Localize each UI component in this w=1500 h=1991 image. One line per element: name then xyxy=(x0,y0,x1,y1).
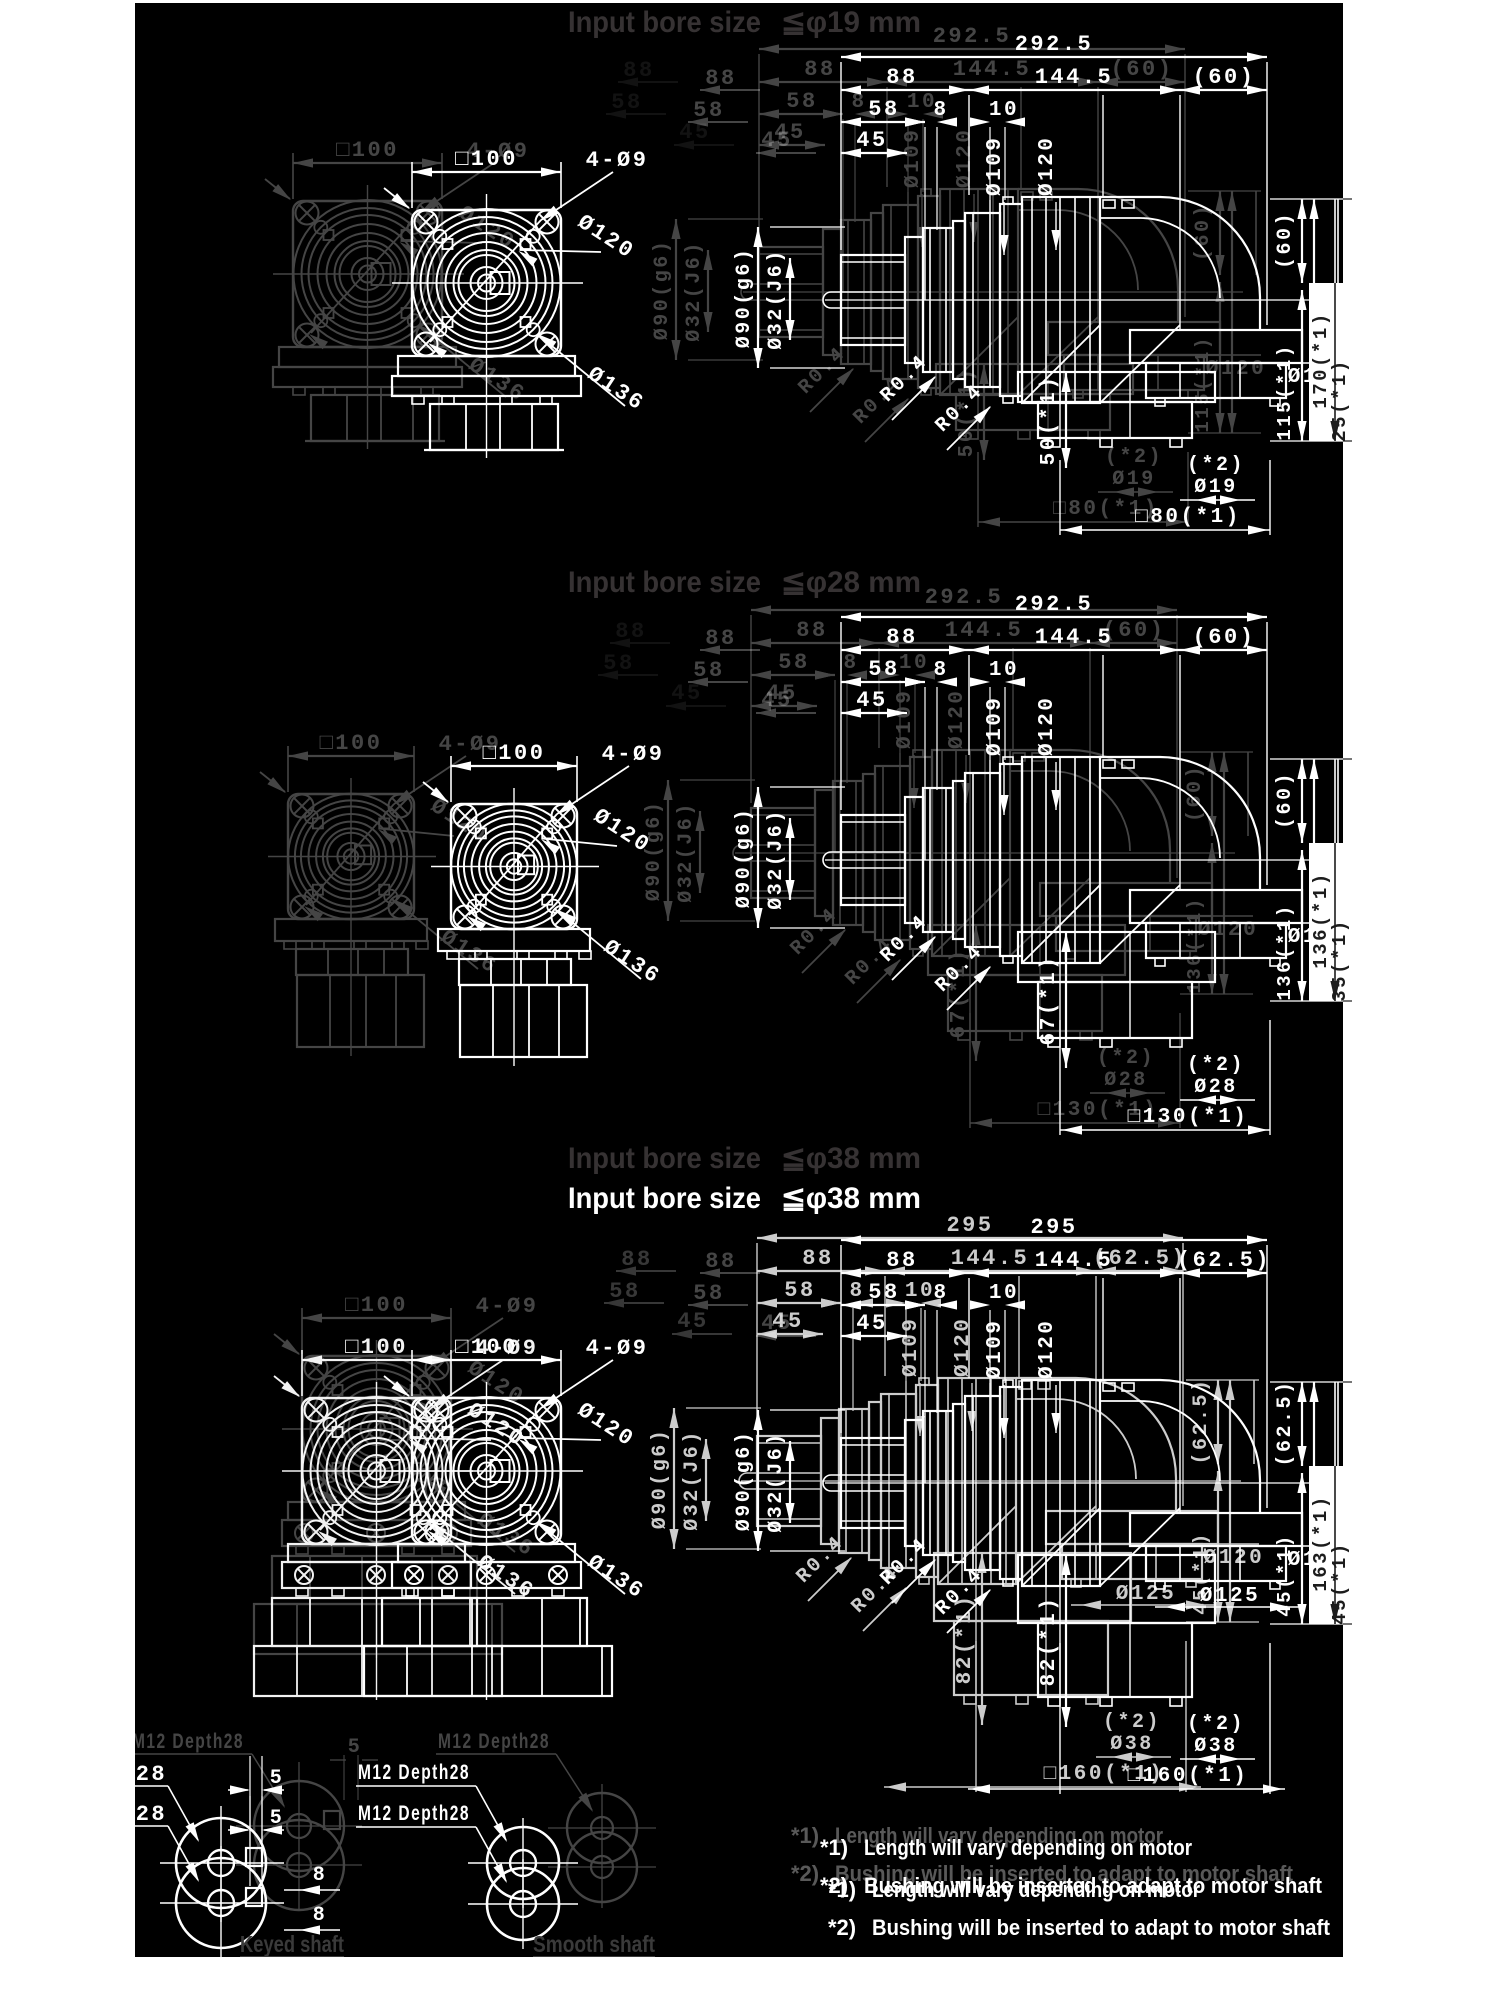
svg-text:88: 88 xyxy=(621,1247,652,1272)
svg-text:88: 88 xyxy=(804,57,835,82)
svg-text:Ø109: Ø109 xyxy=(984,1319,1007,1379)
svg-text:(*2): (*2) xyxy=(1097,1047,1155,1070)
svg-text:295: 295 xyxy=(1030,1215,1077,1240)
svg-text:(*2): (*2) xyxy=(1103,1711,1161,1734)
svg-text:(60): (60) xyxy=(1274,211,1297,269)
svg-text:8: 8 xyxy=(843,652,858,675)
svg-text:88: 88 xyxy=(886,1248,917,1273)
svg-text:≦φ38 mm: ≦φ38 mm xyxy=(781,1182,921,1215)
svg-text:Input bore size: Input bore size xyxy=(568,1142,761,1175)
svg-text:144.5: 144.5 xyxy=(951,1246,1030,1271)
svg-text:88: 88 xyxy=(796,618,827,643)
svg-text:□160(*1): □160(*1) xyxy=(1128,1765,1249,1788)
svg-text:*2): *2) xyxy=(791,1861,819,1886)
svg-text:Keyed shaft: Keyed shaft xyxy=(240,1931,344,1957)
svg-text:Ø120: Ø120 xyxy=(1036,696,1059,756)
svg-text:(62.5): (62.5) xyxy=(1274,1379,1297,1466)
svg-text:Ø120: Ø120 xyxy=(1036,136,1059,196)
svg-text:Ø109: Ø109 xyxy=(902,128,925,188)
svg-text:(60): (60) xyxy=(1274,771,1297,829)
svg-text:136(*1): 136(*1) xyxy=(1274,903,1296,1000)
svg-text:8: 8 xyxy=(933,1282,948,1305)
svg-text:292.5: 292.5 xyxy=(1015,32,1094,57)
svg-text:(*2): (*2) xyxy=(1187,1713,1245,1736)
svg-text:8: 8 xyxy=(933,659,948,682)
svg-text:8: 8 xyxy=(313,1864,328,1887)
svg-text:□100: □100 xyxy=(483,741,546,766)
svg-text:45: 45 xyxy=(856,688,887,713)
svg-text:5: 5 xyxy=(270,1767,285,1790)
svg-text:Ø90(g6): Ø90(g6) xyxy=(643,800,666,902)
svg-text:Ø120: Ø120 xyxy=(946,689,969,749)
svg-text:58: 58 xyxy=(693,1281,724,1306)
svg-text:144.5: 144.5 xyxy=(945,618,1024,643)
svg-text:292.5: 292.5 xyxy=(933,24,1012,49)
svg-text:(*2): (*2) xyxy=(1105,446,1163,469)
svg-text:8: 8 xyxy=(851,91,866,114)
svg-text:Ø90(g6): Ø90(g6) xyxy=(733,807,756,909)
svg-text:Ø32(J6): Ø32(J6) xyxy=(681,1429,704,1531)
svg-text:*1): *1) xyxy=(820,1835,848,1860)
svg-text:144.5: 144.5 xyxy=(953,57,1032,82)
svg-text:45: 45 xyxy=(761,128,792,153)
svg-text:67(*1): 67(*1) xyxy=(1038,955,1061,1046)
svg-text:Ø32(J6): Ø32(J6) xyxy=(765,1431,788,1533)
svg-text:8: 8 xyxy=(933,99,948,122)
svg-text:Bushing will be inserted to ad: Bushing will be inserted to adapt to mot… xyxy=(872,1915,1331,1940)
svg-text:50(*1): 50(*1) xyxy=(1038,375,1061,466)
svg-text:(60): (60) xyxy=(1111,57,1174,82)
svg-text:(62.5): (62.5) xyxy=(1177,1248,1271,1273)
svg-text:45: 45 xyxy=(856,1311,887,1336)
svg-text:Input bore size: Input bore size xyxy=(568,1182,761,1215)
svg-text:58: 58 xyxy=(693,658,724,683)
svg-text:Input bore size: Input bore size xyxy=(568,566,761,599)
svg-text:Ø120: Ø120 xyxy=(952,1317,975,1377)
svg-text:35(*1): 35(*1) xyxy=(1329,918,1351,1001)
svg-text:115(*1): 115(*1) xyxy=(1192,335,1214,432)
svg-text:295: 295 xyxy=(946,1213,993,1238)
svg-text:8: 8 xyxy=(313,1904,328,1927)
svg-text:144.5: 144.5 xyxy=(1035,625,1114,650)
svg-text:Input bore size: Input bore size xyxy=(568,6,761,39)
svg-text:□100: □100 xyxy=(336,138,399,163)
svg-text:Ø120: Ø120 xyxy=(1204,1547,1264,1570)
svg-text:Ø120: Ø120 xyxy=(954,128,977,188)
svg-text:(60): (60) xyxy=(1193,65,1256,90)
svg-text:88: 88 xyxy=(623,58,654,83)
svg-text:58: 58 xyxy=(868,97,899,122)
svg-text:58: 58 xyxy=(609,1279,640,1304)
svg-text:136(*1): 136(*1) xyxy=(1184,896,1206,993)
svg-text:88: 88 xyxy=(886,65,917,90)
svg-text:5: 5 xyxy=(348,1736,363,1759)
svg-text:58: 58 xyxy=(693,98,724,123)
svg-text:Ø109: Ø109 xyxy=(984,136,1007,196)
svg-text:□100: □100 xyxy=(320,731,383,756)
svg-text:10: 10 xyxy=(899,652,929,675)
svg-text:Ø109: Ø109 xyxy=(984,696,1007,756)
svg-text:292.5: 292.5 xyxy=(1015,592,1094,617)
svg-text:144.5: 144.5 xyxy=(1035,1248,1114,1273)
svg-text:(60): (60) xyxy=(1193,625,1256,650)
svg-text:115(*1): 115(*1) xyxy=(1274,343,1296,440)
svg-text:10: 10 xyxy=(989,1282,1019,1305)
svg-text:10: 10 xyxy=(989,659,1019,682)
svg-text:Ø125: Ø125 xyxy=(1116,1583,1176,1606)
svg-text:Ø90(g6): Ø90(g6) xyxy=(651,239,674,341)
svg-text:Ø90(g6): Ø90(g6) xyxy=(733,247,756,349)
svg-text:5: 5 xyxy=(270,1807,285,1830)
svg-text:□100: □100 xyxy=(345,1293,408,1318)
svg-text:88: 88 xyxy=(615,619,646,644)
svg-text:Ø120: Ø120 xyxy=(1036,1319,1059,1379)
svg-text:Ø32(J6): Ø32(J6) xyxy=(765,248,788,350)
svg-text:*2): *2) xyxy=(828,1915,856,1940)
svg-text:M12 Depth28: M12 Depth28 xyxy=(438,1730,550,1753)
svg-text:Length will vary depending on: Length will vary depending on motor xyxy=(864,1835,1192,1860)
svg-text:58: 58 xyxy=(868,657,899,682)
svg-text:(*2): (*2) xyxy=(1187,454,1245,477)
svg-text:45: 45 xyxy=(761,1311,792,1336)
svg-text:Ø32(J6): Ø32(J6) xyxy=(675,801,698,903)
svg-text:45: 45 xyxy=(677,1309,708,1334)
svg-text:M12 Depth28: M12 Depth28 xyxy=(358,1802,470,1825)
svg-text:Ø32(J6): Ø32(J6) xyxy=(683,240,706,342)
svg-text:88: 88 xyxy=(705,626,736,651)
svg-text:88: 88 xyxy=(886,625,917,650)
svg-text:(*2): (*2) xyxy=(1187,1054,1245,1077)
svg-text:□80(*1): □80(*1) xyxy=(1135,506,1241,529)
svg-text:*1): *1) xyxy=(828,1877,856,1902)
svg-text:88: 88 xyxy=(705,66,736,91)
svg-text:≦φ28 mm: ≦φ28 mm xyxy=(781,566,921,599)
svg-text:8: 8 xyxy=(849,1280,864,1303)
svg-text:*1): *1) xyxy=(791,1823,819,1848)
svg-text:45: 45 xyxy=(856,128,887,153)
svg-text:45(*1): 45(*1) xyxy=(1329,1541,1351,1624)
svg-text:58: 58 xyxy=(868,1280,899,1305)
svg-text:≦φ38 mm: ≦φ38 mm xyxy=(781,1142,921,1175)
svg-text:□130(*1): □130(*1) xyxy=(1128,1106,1249,1129)
svg-text:Ø125: Ø125 xyxy=(1200,1585,1260,1608)
svg-text:Ø109: Ø109 xyxy=(900,1317,923,1377)
svg-text:4-Ø9: 4-Ø9 xyxy=(602,742,665,767)
svg-text:58: 58 xyxy=(603,651,634,676)
svg-text:10: 10 xyxy=(905,1280,935,1303)
svg-text:10: 10 xyxy=(989,99,1019,122)
svg-text:□100: □100 xyxy=(455,147,518,172)
svg-text:292.5: 292.5 xyxy=(925,585,1004,610)
svg-text:58: 58 xyxy=(784,1278,815,1303)
svg-text:Ø32(J6): Ø32(J6) xyxy=(765,808,788,910)
svg-text:□100: □100 xyxy=(455,1335,518,1360)
svg-text:Ø90(g6): Ø90(g6) xyxy=(733,1430,756,1532)
svg-text:4-Ø9: 4-Ø9 xyxy=(586,1336,649,1361)
svg-text:58: 58 xyxy=(786,89,817,114)
svg-text:45: 45 xyxy=(671,681,702,706)
svg-text:4-Ø9: 4-Ø9 xyxy=(586,148,649,173)
svg-text:M12 Depth28: M12 Depth28 xyxy=(358,1761,470,1784)
svg-text:4-Ø9: 4-Ø9 xyxy=(476,1294,539,1319)
svg-text:Ø90(g6): Ø90(g6) xyxy=(649,1428,672,1530)
svg-text:88: 88 xyxy=(705,1249,736,1274)
svg-text:88: 88 xyxy=(802,1246,833,1271)
svg-text:Smooth shaft: Smooth shaft xyxy=(533,1931,655,1957)
svg-text:Length will vary depending on: Length will vary depending on motor xyxy=(872,1877,1200,1902)
svg-text:45: 45 xyxy=(761,688,792,713)
svg-text:58: 58 xyxy=(778,650,809,675)
svg-text:□100: □100 xyxy=(345,1335,408,1360)
svg-text:≦φ19 mm: ≦φ19 mm xyxy=(781,6,921,39)
svg-text:25(*1): 25(*1) xyxy=(1329,358,1351,441)
svg-text:M12 Depth28: M12 Depth28 xyxy=(132,1730,244,1753)
svg-text:82(*1): 82(*1) xyxy=(1038,1596,1061,1687)
svg-text:144.5: 144.5 xyxy=(1035,65,1114,90)
svg-text:Ø109: Ø109 xyxy=(894,689,917,749)
svg-text:58: 58 xyxy=(611,90,642,115)
svg-text:45(*1): 45(*1) xyxy=(1274,1533,1296,1616)
